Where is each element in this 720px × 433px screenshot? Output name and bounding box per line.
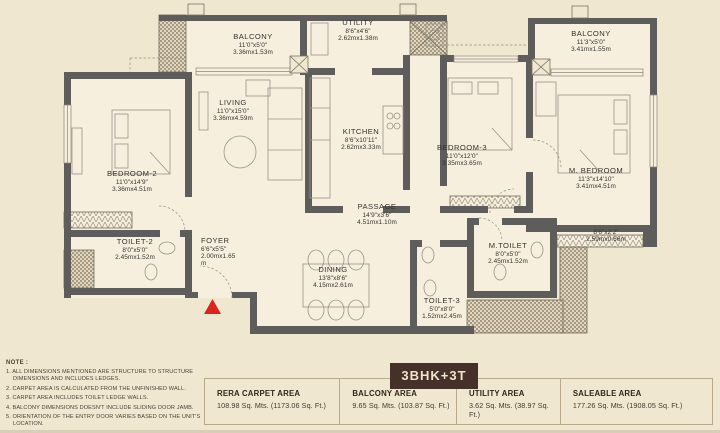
area-value: 177.26 Sq. Mts. (1908.05 Sq. Ft.): [573, 401, 708, 410]
room-label-deck-ledge: 8'6"x2'2" 2.59mx0.66m: [586, 229, 626, 244]
floor-plan-page: BALCONY 11'0"x5'0" 3.36mx1.53m UTILITY 8…: [0, 0, 720, 433]
note-item: 4. BALCONY DIMENSIONS DOESN'T INCLUDE SL…: [6, 405, 204, 412]
area-label: SALEABLE AREA: [573, 389, 708, 398]
note-item: 3. CARPET AREA INCLUDES TOILET LEDGE WAL…: [6, 395, 204, 402]
room-label-balcony-right: BALCONY 11'3"x5'0" 3.41mx1.55m: [571, 30, 611, 53]
room-label-toilet-2: TOILET-2 8'0"x5'0" 2.45mx1.52m: [115, 238, 155, 261]
area-cell-rera-carpet: RERA CARPET AREA 108.98 Sq. Mts. (1173.0…: [205, 379, 339, 424]
room-label-foyer: FOYER 6'6"x5'5" 2.00mx1.65 m: [201, 237, 235, 268]
room-label-dining: DINING 13'8"x8'6" 4.15mx2.61m: [313, 266, 353, 289]
room-label-kitchen: KITCHEN 8'6"x10'11" 2.62mx3.33m: [341, 128, 381, 151]
area-label: BALCONY AREA: [352, 389, 452, 398]
notes-block: NOTE : 1. ALL DIMENSIONS MENTIONED ARE S…: [6, 360, 204, 431]
note-item: 1. ALL DIMENSIONS MENTIONED ARE STRUCTUR…: [6, 369, 204, 383]
room-label-living: LIVING 11'0"x15'0" 3.36mx4.59m: [213, 99, 253, 122]
area-label: RERA CARPET AREA: [217, 389, 335, 398]
room-label-toilet-3: TOILET-3 5'0"x8'0" 1.52mx2.45m: [422, 297, 462, 320]
area-value: 108.98 Sq. Mts. (1173.06 Sq. Ft.): [217, 401, 335, 410]
notes-title: NOTE :: [6, 360, 204, 366]
area-cell-saleable: SALEABLE AREA 177.26 Sq. Mts. (1908.05 S…: [560, 379, 712, 424]
note-item: 2. CARPET AREA IS CALCULATED FROM THE UN…: [6, 386, 204, 393]
room-label-utility: UTILITY 8'6"x4'6" 2.62mx1.38m: [338, 19, 378, 42]
room-label-m-bedroom: M. BEDROOM 11'3"x14'10" 3.41mx4.51m: [569, 167, 623, 190]
note-item: 5. ORIENTATION OF THE ENTRY DOOR VARIES …: [6, 414, 204, 428]
notes-list: 1. ALL DIMENSIONS MENTIONED ARE STRUCTUR…: [6, 369, 204, 428]
room-label-passage: PASSAGE 14'9"x3'6" 4.51mx1.10m: [357, 203, 397, 226]
entry-marker-icon: [204, 299, 221, 314]
unit-type-badge: 3BHK+3T: [390, 363, 478, 389]
area-value: 3.62 Sq. Mts. (38.97 Sq. Ft.): [469, 401, 556, 419]
area-label: UTILITY AREA: [469, 389, 556, 398]
room-label-balcony-left: BALCONY 11'0"x5'0" 3.36mx1.53m: [233, 33, 273, 56]
room-label-bedroom-3: BEDROOM-3 11'0"x12'0" 3.35mx3.65m: [437, 144, 487, 167]
room-label-m-toilet: M.TOILET 8'0"x5'0" 2.45mx1.52m: [488, 242, 528, 265]
area-value: 9.65 Sq. Mts. (103.87 Sq. Ft.): [352, 401, 452, 410]
room-label-bedroom-2: BEDROOM-2 11'0"x14'9" 3.36mx4.51m: [107, 170, 157, 193]
